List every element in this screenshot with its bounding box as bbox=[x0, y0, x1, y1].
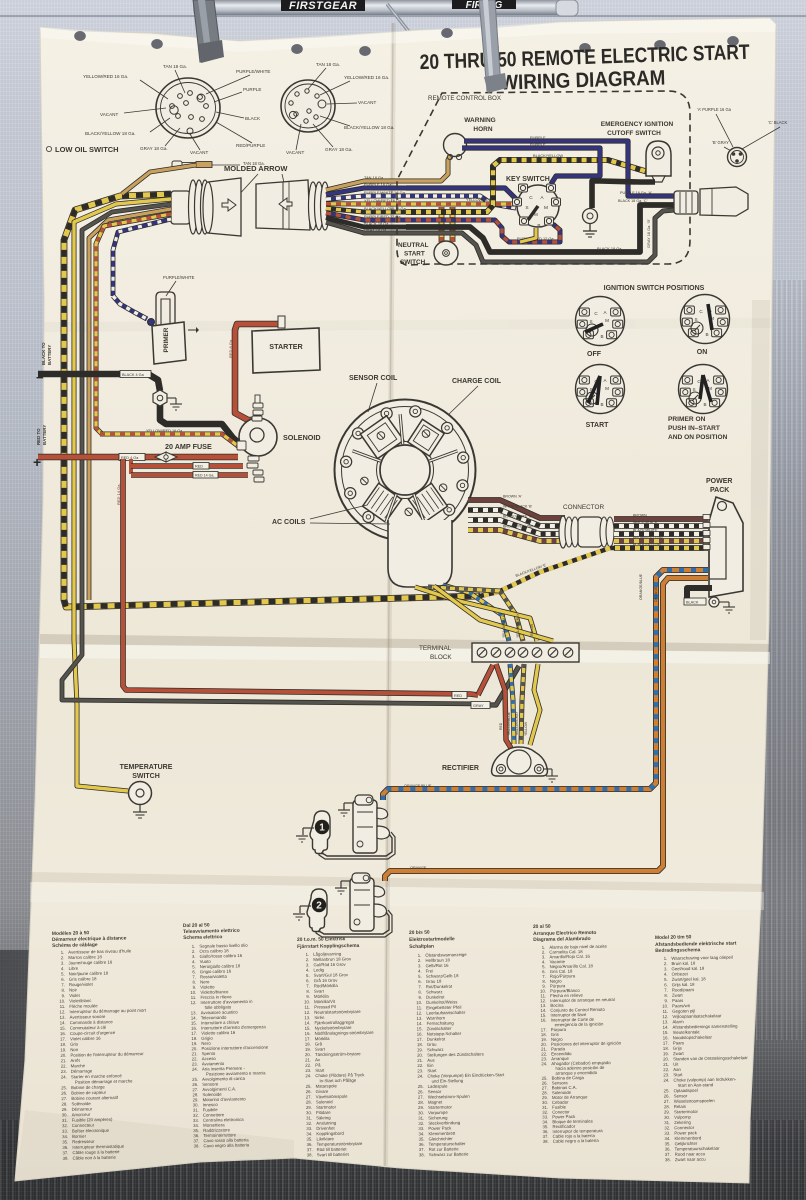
svg-text:26.: 26. bbox=[61, 1091, 67, 1096]
svg-text:31.: 31. bbox=[62, 1118, 68, 1123]
svg-text:6.: 6. bbox=[306, 978, 310, 983]
svg-text:BLACK/YELLOW 18 Ga.: BLACK/YELLOW 18 Ga. bbox=[344, 125, 395, 130]
svg-text:PURPLE 16 Ga. ‘A’: PURPLE 16 Ga. ‘A’ bbox=[620, 191, 652, 195]
svg-text:5.: 5. bbox=[306, 973, 310, 978]
svg-text:RED/PURPLE: RED/PURPLE bbox=[236, 143, 265, 148]
svg-text:M: M bbox=[544, 205, 548, 211]
svg-text:BLOCK: BLOCK bbox=[430, 654, 452, 661]
svg-text:12.: 12. bbox=[190, 1000, 196, 1005]
svg-text:20.: 20. bbox=[60, 1053, 66, 1058]
svg-text:19.: 19. bbox=[60, 1047, 66, 1052]
svg-text:11.: 11. bbox=[60, 1004, 66, 1009]
svg-text:YELLOW/RED 16 Ga.: YELLOW/RED 16 Ga. bbox=[344, 75, 389, 80]
svg-text:Fjärrstart Kopplingschema: Fjärrstart Kopplingschema bbox=[297, 943, 360, 950]
svg-text:7.: 7. bbox=[306, 983, 310, 988]
svg-text:BATTERY: BATTERY bbox=[47, 345, 52, 365]
svg-text:GRAY 18 Ga. ‘B’: GRAY 18 Ga. ‘B’ bbox=[646, 219, 651, 248]
svg-text:PURPLE/WHITE: PURPLE/WHITE bbox=[163, 275, 195, 280]
svg-text:RECTIFIER: RECTIFIER bbox=[442, 765, 479, 772]
svg-text:20 AMP FUSE: 20 AMP FUSE bbox=[165, 442, 212, 451]
svg-text:Noir: Noir bbox=[69, 987, 78, 992]
svg-text:BLACK TO: BLACK TO bbox=[41, 342, 46, 365]
svg-text:B: B bbox=[705, 332, 708, 337]
svg-text:BLACK: BLACK bbox=[245, 116, 261, 121]
svg-text:Bedradingsschema: Bedradingsschema bbox=[655, 947, 700, 954]
svg-text:Svart till batteriet: Svart till batteriet bbox=[317, 1152, 350, 1158]
svg-text:START: START bbox=[586, 422, 610, 429]
svg-text:8.: 8. bbox=[61, 988, 65, 993]
svg-text:CONNECTOR: CONNECTOR bbox=[563, 504, 604, 511]
svg-text:28.: 28. bbox=[61, 1102, 67, 1107]
svg-text:Röd/Mörklila: Röd/Mörklila bbox=[314, 983, 339, 988]
svg-text:KEY SWITCH: KEY SWITCH bbox=[506, 176, 550, 183]
svg-text:B: B bbox=[600, 402, 603, 407]
svg-text:PURPLE: PURPLE bbox=[530, 142, 546, 147]
svg-text:RED: RED bbox=[195, 465, 203, 469]
svg-text:Gelb/Rot 16: Gelb/Rot 16 bbox=[425, 963, 449, 968]
svg-text:BROWN/YELLOW ‘D’: BROWN/YELLOW ‘D’ bbox=[503, 525, 538, 529]
svg-text:TERMINAL: TERMINAL bbox=[419, 645, 452, 652]
svg-text:VACANT: VACANT bbox=[190, 150, 208, 155]
svg-text:Arrêt: Arrêt bbox=[70, 1058, 80, 1063]
svg-text:YELLOW/GRAY: YELLOW/GRAY bbox=[516, 613, 520, 638]
svg-text:BLACK/WHITE ‘C’: BLACK/WHITE ‘C’ bbox=[503, 515, 533, 519]
svg-text:9.: 9. bbox=[306, 994, 310, 999]
svg-text:PACK: PACK bbox=[710, 487, 729, 494]
svg-text:BLACK/YELLOW 18 Ga.: BLACK/YELLOW 18 Ga. bbox=[85, 131, 136, 136]
svg-text:Neutralstartströmbrytare: Neutralstartströmbrytare bbox=[314, 1009, 361, 1015]
svg-text:Boîtier électronique: Boîtier électronique bbox=[72, 1128, 110, 1134]
svg-text:BLACK: BLACK bbox=[686, 601, 699, 605]
svg-text:TEMPERATURE: TEMPERATURE bbox=[120, 764, 173, 771]
svg-text:S: S bbox=[589, 319, 592, 324]
svg-text:1: 1 bbox=[319, 823, 325, 834]
svg-text:PRIMER: PRIMER bbox=[163, 327, 170, 352]
svg-text:38.: 38. bbox=[63, 1156, 69, 1161]
svg-text:17.: 17. bbox=[60, 1036, 66, 1041]
svg-text:PURPLE 16 Ga.: PURPLE 16 Ga. bbox=[364, 182, 392, 187]
svg-text:YELLOW/RED 16 Ga.: YELLOW/RED 16 Ga. bbox=[83, 74, 128, 79]
svg-text:BROWN/YELLOW: BROWN/YELLOW bbox=[633, 536, 663, 540]
svg-text:VACANT: VACANT bbox=[100, 112, 118, 117]
svg-text:Rouge/violet: Rouge/violet bbox=[69, 982, 94, 988]
svg-text:ON: ON bbox=[697, 349, 708, 356]
svg-text:2.: 2. bbox=[306, 957, 310, 962]
svg-text:BLACK 4 Ga: BLACK 4 Ga bbox=[122, 373, 145, 377]
svg-text:PRIMER ON: PRIMER ON bbox=[668, 416, 706, 423]
svg-text:C: C bbox=[529, 195, 533, 201]
svg-text:MOLDED ARROW: MOLDED ARROW bbox=[224, 164, 288, 173]
svg-text:YELLOW/BLUE: YELLOW/BLUE bbox=[502, 613, 506, 638]
svg-text:ORANGE: ORANGE bbox=[654, 586, 658, 602]
svg-text:1.: 1. bbox=[306, 952, 310, 957]
svg-text:3.: 3. bbox=[61, 961, 65, 966]
svg-text:VACANT: VACANT bbox=[358, 100, 376, 105]
svg-text:NEUTRAL: NEUTRAL bbox=[398, 242, 429, 249]
svg-text:7.: 7. bbox=[418, 984, 422, 989]
svg-text:24.: 24. bbox=[541, 1061, 547, 1066]
svg-text:21.: 21. bbox=[60, 1058, 66, 1063]
svg-text:4.: 4. bbox=[664, 972, 668, 977]
svg-text:WHITE/BLACK ‘B’: WHITE/BLACK ‘B’ bbox=[503, 505, 533, 509]
svg-text:CHARGE COIL: CHARGE COIL bbox=[452, 378, 502, 385]
svg-text:SWITCH: SWITCH bbox=[132, 773, 160, 780]
svg-text:22.: 22. bbox=[61, 1064, 67, 1069]
svg-text:‘C’ BLACK: ‘C’ BLACK bbox=[768, 120, 787, 125]
svg-text:3.: 3. bbox=[664, 966, 668, 971]
svg-text:Noir: Noir bbox=[70, 1047, 79, 1052]
svg-text:M: M bbox=[605, 386, 609, 391]
svg-text:38.: 38. bbox=[419, 1152, 425, 1157]
svg-text:GRAY 18 Ga.: GRAY 18 Ga. bbox=[140, 146, 168, 151]
svg-text:TAN 18 Ga.: TAN 18 Ga. bbox=[316, 62, 340, 67]
svg-text:16.: 16. bbox=[541, 1018, 547, 1023]
svg-text:Gris: Gris bbox=[70, 1042, 78, 1047]
svg-text:SENSOR COIL: SENSOR COIL bbox=[349, 375, 398, 382]
svg-text:38.: 38. bbox=[193, 1143, 199, 1148]
svg-text:SOLENOID: SOLENOID bbox=[283, 433, 321, 442]
svg-text:Bobine courant alternatif: Bobine courant alternatif bbox=[71, 1095, 118, 1101]
svg-text:9.: 9. bbox=[664, 998, 668, 1003]
svg-text:20 t.o.m. 50 Elektrisk: 20 t.o.m. 50 Elektrisk bbox=[297, 936, 346, 943]
svg-text:S: S bbox=[525, 205, 528, 211]
svg-text:RED 14 Ga.: RED 14 Ga. bbox=[116, 483, 121, 505]
svg-text:BROWN ‘A’: BROWN ‘A’ bbox=[503, 495, 522, 499]
svg-text:23.: 23. bbox=[61, 1069, 67, 1074]
svg-text:3.: 3. bbox=[418, 963, 422, 968]
svg-text:IGNITION SWITCH POSITIONS: IGNITION SWITCH POSITIONS bbox=[604, 285, 705, 292]
svg-text:12.: 12. bbox=[59, 1009, 65, 1014]
svg-text:Schéma de câblage: Schéma de câblage bbox=[52, 942, 98, 949]
svg-text:18.: 18. bbox=[60, 1042, 66, 1047]
svg-text:24.: 24. bbox=[305, 1073, 311, 1078]
svg-text:ORANGE/BLUE: ORANGE/BLUE bbox=[639, 573, 643, 600]
svg-text:START: START bbox=[404, 251, 425, 258]
svg-text:2.: 2. bbox=[664, 961, 668, 966]
svg-text:CUTOFF SWITCH: CUTOFF SWITCH bbox=[607, 130, 661, 137]
svg-text:B: B bbox=[703, 402, 706, 407]
svg-text:RED TO: RED TO bbox=[36, 428, 41, 445]
svg-text:6.: 6. bbox=[418, 979, 422, 984]
svg-text:Noodstopschakelaar: Noodstopschakelaar bbox=[673, 1035, 713, 1041]
svg-text:Nödfrånslagnings-strömbrytare: Nödfrånslagnings-strömbrytare bbox=[315, 1030, 375, 1036]
svg-text:37.: 37. bbox=[62, 1150, 68, 1155]
svg-text:8.: 8. bbox=[664, 993, 668, 998]
svg-text:BROWN: BROWN bbox=[633, 514, 647, 518]
svg-text:RED: RED bbox=[454, 694, 462, 698]
svg-text:Modèles 20 à 50: Modèles 20 à 50 bbox=[52, 930, 90, 937]
svg-text:WHITE/BLACK: WHITE/BLACK bbox=[633, 521, 658, 525]
svg-text:4.: 4. bbox=[306, 968, 310, 973]
svg-text:REMOTE CONTROL BOX: REMOTE CONTROL BOX bbox=[428, 95, 501, 102]
svg-text:BLACK 18 Ga. ‘C’: BLACK 18 Ga. ‘C’ bbox=[618, 199, 648, 203]
svg-text:27.: 27. bbox=[61, 1096, 67, 1101]
svg-text:ORANGE: ORANGE bbox=[410, 866, 427, 870]
svg-text:16.: 16. bbox=[60, 1031, 66, 1036]
svg-text:6.: 6. bbox=[664, 982, 668, 987]
svg-text:Diagrama del Alambrado: Diagrama del Alambrado bbox=[533, 936, 591, 943]
svg-text:24.: 24. bbox=[417, 1074, 423, 1079]
svg-text:STARTER: STARTER bbox=[269, 342, 303, 351]
svg-text:GRAY 18 Ga.: GRAY 18 Ga. bbox=[364, 227, 387, 232]
svg-text:Cable negro a la batería: Cable negro a la batería bbox=[553, 1138, 600, 1144]
svg-text:PURPLE: PURPLE bbox=[243, 87, 261, 92]
svg-text:TAN 18 Ga.: TAN 18 Ga. bbox=[163, 64, 187, 69]
svg-text:ORANGE/BLUE: ORANGE/BLUE bbox=[404, 784, 432, 788]
svg-text:Jaune/rouge calibre 16: Jaune/rouge calibre 16 bbox=[68, 960, 112, 966]
svg-text:BATTERY: BATTERY bbox=[42, 425, 47, 445]
svg-text:PURPLE/RED 12 Ga.: PURPLE/RED 12 Ga. bbox=[364, 214, 402, 219]
svg-text:BLACK/YELLOW: BLACK/YELLOW bbox=[533, 153, 563, 158]
svg-text:Stellungen des Zündschalters: Stellungen des Zündschalters bbox=[427, 1052, 484, 1058]
svg-text:‘B’ GRAY: ‘B’ GRAY bbox=[712, 140, 729, 145]
svg-text:Teleavviamento elettrico: Teleavviamento elettrico bbox=[183, 928, 240, 935]
svg-text:7.: 7. bbox=[664, 988, 668, 993]
svg-text:1.: 1. bbox=[61, 950, 65, 955]
svg-text:BLACK 18 Ga.: BLACK 18 Ga. bbox=[364, 221, 390, 226]
svg-text:AC COILS: AC COILS bbox=[272, 519, 306, 526]
svg-text:VACANT: VACANT bbox=[286, 150, 304, 155]
svg-text:AND ON POSITION: AND ON POSITION bbox=[668, 434, 728, 441]
svg-text:20 al 50: 20 al 50 bbox=[533, 924, 551, 930]
svg-text:Câble noir à la batterie: Câble noir à la batterie bbox=[73, 1155, 117, 1161]
svg-text:Mörklila: Mörklila bbox=[315, 1036, 330, 1041]
svg-text:2.: 2. bbox=[61, 955, 65, 960]
svg-text:YELLOW: YELLOW bbox=[530, 623, 534, 638]
svg-text:Zwart naar accu: Zwart naar accu bbox=[675, 1157, 706, 1163]
svg-text:5.: 5. bbox=[61, 971, 65, 976]
svg-text:Rood/paars: Rood/paars bbox=[672, 987, 694, 992]
svg-text:LOW OIL SWITCH: LOW OIL SWITCH bbox=[55, 145, 119, 154]
svg-text:32.: 32. bbox=[62, 1123, 68, 1128]
svg-text:FIRSTGEAR: FIRSTGEAR bbox=[289, 0, 357, 12]
svg-text:BLACK 18 Ga.: BLACK 18 Ga. bbox=[597, 246, 623, 251]
svg-text:TAN 18 Ga.: TAN 18 Ga. bbox=[364, 175, 384, 180]
svg-text:GRAY 18 Ga.: GRAY 18 Ga. bbox=[325, 147, 353, 152]
svg-text:14.: 14. bbox=[60, 1020, 66, 1025]
svg-text:Vrijloopaanlaatschakelaar: Vrijloopaanlaatschakelaar bbox=[672, 1013, 722, 1019]
svg-text:13.: 13. bbox=[60, 1015, 66, 1020]
svg-text:35.: 35. bbox=[62, 1139, 68, 1144]
svg-text:34.: 34. bbox=[62, 1134, 68, 1139]
svg-text:WARNING: WARNING bbox=[464, 117, 495, 124]
svg-text:BLACK/YELLOW 18 Ga.: BLACK/YELLOW 18 Ga. bbox=[364, 206, 407, 211]
svg-text:EMERGENCY IGNITION: EMERGENCY IGNITION bbox=[601, 121, 674, 128]
svg-text:6.: 6. bbox=[61, 977, 65, 982]
svg-text:YELLOW/RED: YELLOW/RED bbox=[466, 197, 492, 202]
svg-text:RED 8 Ga: RED 8 Ga bbox=[228, 339, 233, 358]
svg-text:33.: 33. bbox=[62, 1129, 68, 1134]
svg-text:24.: 24. bbox=[61, 1074, 67, 1079]
svg-text:24.: 24. bbox=[192, 1067, 198, 1072]
svg-text:Arranque Electrico Remoto: Arranque Electrico Remoto bbox=[533, 930, 596, 937]
svg-text:PUSH IN–START: PUSH IN–START bbox=[668, 425, 720, 432]
svg-text:RED: RED bbox=[499, 722, 503, 730]
svg-text:Wisselstroomspoelen: Wisselstroomspoelen bbox=[674, 1098, 716, 1104]
svg-text:YELLOW/BLUE: YELLOW/BLUE bbox=[507, 711, 511, 736]
svg-text:POWER: POWER bbox=[706, 478, 732, 485]
svg-text:38.: 38. bbox=[307, 1152, 313, 1157]
svg-text:PURPLE/WHITE 18 Ga.: PURPLE/WHITE 18 Ga. bbox=[364, 190, 406, 195]
svg-text:25.: 25. bbox=[61, 1085, 67, 1090]
svg-text:Schaltplan: Schaltplan bbox=[409, 944, 434, 950]
svg-text:BLACK/WHITE: BLACK/WHITE bbox=[633, 529, 658, 533]
svg-text:4.: 4. bbox=[61, 966, 65, 971]
svg-text:38.: 38. bbox=[665, 1157, 671, 1162]
svg-text:30.: 30. bbox=[62, 1112, 68, 1117]
svg-text:20 bis 50: 20 bis 50 bbox=[409, 930, 430, 936]
svg-text:SWITCH: SWITCH bbox=[400, 259, 426, 266]
svg-text:Libre: Libre bbox=[69, 966, 79, 971]
svg-text:RED 14 Ga.: RED 14 Ga. bbox=[195, 474, 214, 478]
svg-text:Schema elettrico: Schema elettrico bbox=[183, 934, 222, 941]
svg-text:Schwarz zur Batterie: Schwarz zur Batterie bbox=[429, 1151, 469, 1157]
svg-text:24.: 24. bbox=[663, 1078, 669, 1083]
svg-text:OFF: OFF bbox=[587, 351, 602, 358]
svg-text:1.: 1. bbox=[664, 956, 668, 961]
svg-text:GRAY: GRAY bbox=[473, 704, 484, 708]
svg-text:2: 2 bbox=[316, 901, 322, 912]
svg-text:9.: 9. bbox=[62, 993, 66, 998]
svg-text:B: B bbox=[600, 334, 603, 339]
svg-text:38.: 38. bbox=[543, 1139, 549, 1144]
svg-text:36.: 36. bbox=[62, 1145, 68, 1150]
svg-text:10.: 10. bbox=[59, 999, 65, 1004]
svg-text:HORN: HORN bbox=[473, 126, 492, 133]
svg-text:M: M bbox=[605, 318, 609, 323]
svg-text:7.: 7. bbox=[61, 982, 65, 987]
svg-text:S: S bbox=[692, 387, 695, 392]
svg-text:5.: 5. bbox=[664, 977, 668, 982]
svg-text:Tändningsström-brytare: Tändningsström-brytare bbox=[315, 1051, 361, 1057]
svg-text:YELLOW: YELLOW bbox=[524, 721, 528, 736]
svg-text:YELLOW/GRAY: YELLOW/GRAY bbox=[515, 711, 519, 736]
svg-text:Cavo negro alla batteria: Cavo negro alla batteria bbox=[203, 1142, 249, 1148]
svg-text:2.: 2. bbox=[418, 958, 422, 963]
svg-text:In-Start och Påläge: In-Start och Påläge bbox=[319, 1078, 356, 1084]
svg-text:Model 20 t/m 50: Model 20 t/m 50 bbox=[655, 934, 692, 941]
svg-text:Elektrostartmodelle: Elektrostartmodelle bbox=[409, 936, 455, 943]
svg-text:‘A’ PURPLE 16 Ga: ‘A’ PURPLE 16 Ga bbox=[697, 107, 732, 112]
svg-text:PURPLE: PURPLE bbox=[530, 135, 546, 140]
svg-text:Violet calibre 16: Violet calibre 16 bbox=[70, 1036, 101, 1042]
svg-text:YELLOW/RED 16 Ga.: YELLOW/RED 16 Ga. bbox=[146, 429, 183, 433]
svg-text:Dal 20 al 50: Dal 20 al 50 bbox=[183, 922, 210, 929]
svg-text:15.: 15. bbox=[60, 1026, 66, 1031]
svg-text:29.: 29. bbox=[62, 1107, 68, 1112]
svg-text:PURPLE/WHITE: PURPLE/WHITE bbox=[236, 69, 270, 74]
svg-text:Geel/rood kal. 18: Geel/rood kal. 18 bbox=[671, 966, 704, 972]
svg-text:S: S bbox=[694, 317, 697, 322]
